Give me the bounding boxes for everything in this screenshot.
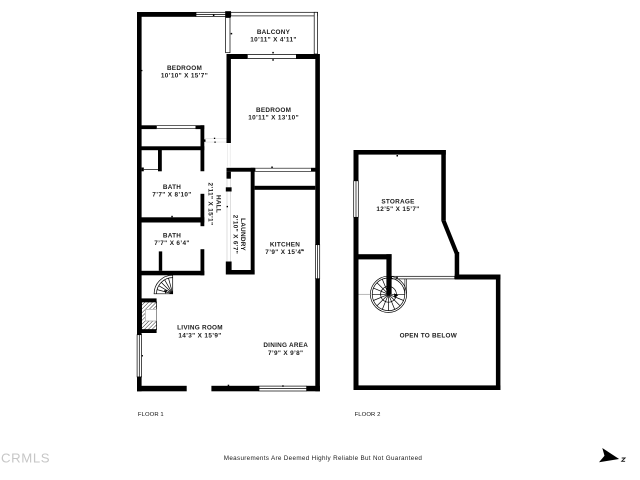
svg-text:14’3" X 15’9": 14’3" X 15’9" <box>178 332 221 339</box>
svg-text:FLOOR 2: FLOOR 2 <box>355 412 381 418</box>
svg-text:7’9" X 15’4": 7’9" X 15’4" <box>265 249 304 256</box>
svg-text:LIVING ROOM: LIVING ROOM <box>177 324 223 331</box>
svg-text:7’7" X 6’4": 7’7" X 6’4" <box>154 240 190 247</box>
svg-text:BALCONY: BALCONY <box>257 29 291 36</box>
svg-text:10’10" X 15’7": 10’10" X 15’7" <box>161 73 208 80</box>
svg-text:2’10" X 6’7": 2’10" X 6’7" <box>231 215 238 254</box>
svg-text:2’11" X 15’1": 2’11" X 15’1" <box>207 183 214 226</box>
svg-text:BATH: BATH <box>163 233 181 240</box>
svg-text:LAUNDRY: LAUNDRY <box>239 218 246 251</box>
svg-text:CRMLS: CRMLS <box>1 451 50 466</box>
svg-text:Measurements Are Deemed Highly: Measurements Are Deemed Highly Reliable … <box>224 455 423 462</box>
svg-text:KITCHEN: KITCHEN <box>270 241 300 248</box>
svg-text:7’7" X 8’10": 7’7" X 8’10" <box>152 192 191 199</box>
svg-text:BATH: BATH <box>163 184 181 191</box>
svg-text:STORAGE: STORAGE <box>381 198 415 205</box>
svg-text:BEDROOM: BEDROOM <box>256 107 291 114</box>
svg-text:DINING AREA: DINING AREA <box>263 342 308 349</box>
svg-text:FLOOR 1: FLOOR 1 <box>138 412 164 418</box>
svg-text:12’5" X 15’7": 12’5" X 15’7" <box>376 206 419 213</box>
svg-text:10’11" X 4’11": 10’11" X 4’11" <box>250 36 297 43</box>
svg-text:OPEN TO BELOW: OPEN TO BELOW <box>400 332 458 339</box>
svg-text:10’11" X 13’10": 10’11" X 13’10" <box>248 114 299 121</box>
svg-text:7’9" X 9’8": 7’9" X 9’8" <box>268 350 304 357</box>
svg-text:BEDROOM: BEDROOM <box>167 65 202 72</box>
svg-text:HALL: HALL <box>214 195 221 213</box>
